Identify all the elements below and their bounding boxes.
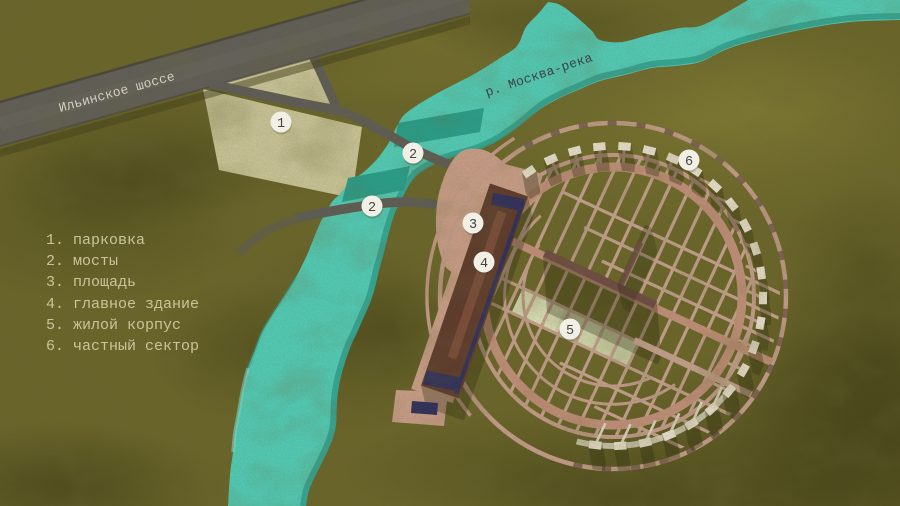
svg-text:4: 4 (480, 257, 488, 272)
svg-text:6: 6 (685, 155, 693, 170)
svg-text:6. частный сектор: 6. частный сектор (46, 338, 199, 355)
svg-text:5. жилой корпус: 5. жилой корпус (46, 317, 181, 334)
svg-text:2: 2 (368, 201, 376, 216)
svg-text:5: 5 (566, 324, 574, 339)
svg-text:1: 1 (277, 117, 285, 132)
svg-text:2. мосты: 2. мосты (46, 253, 118, 270)
svg-text:4. главное здание: 4. главное здание (46, 296, 199, 313)
svg-text:3. площадь: 3. площадь (46, 274, 136, 291)
svg-text:1. парковка: 1. парковка (46, 232, 145, 249)
svg-text:2: 2 (409, 148, 417, 163)
svg-text:3: 3 (469, 218, 477, 233)
